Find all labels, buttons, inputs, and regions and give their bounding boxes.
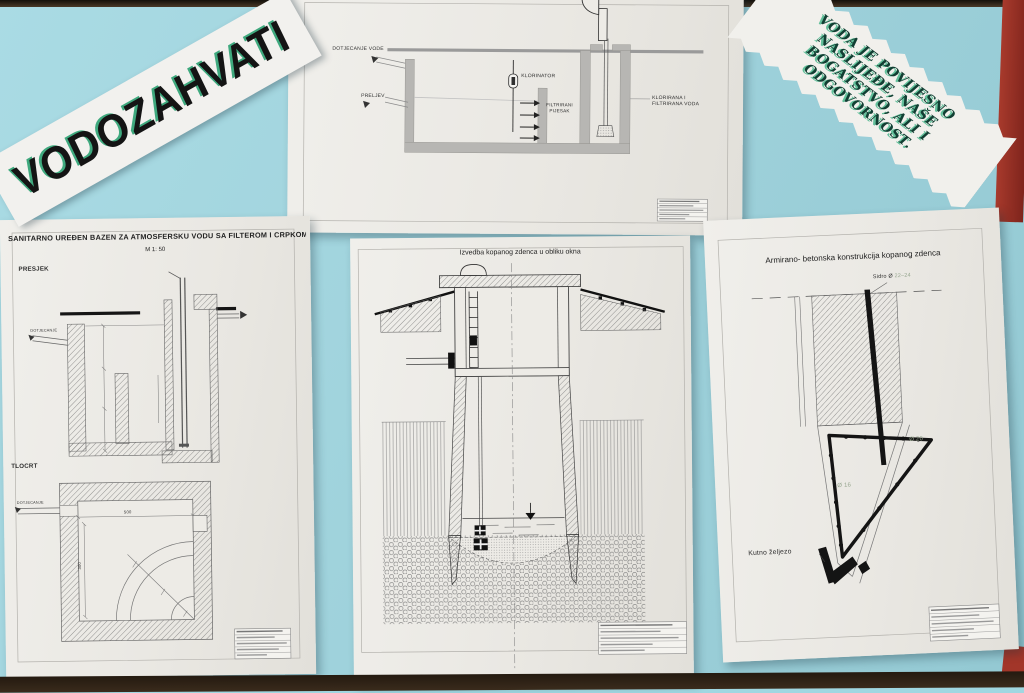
title-block <box>235 628 291 659</box>
dim-width-label: 500 <box>124 509 132 514</box>
water-level-mark <box>525 513 535 520</box>
banner-text: VODOZAHVATI <box>6 10 297 209</box>
quote-text: VODA JE POVIJESNO NASLIJEĐE, NAŠE BOGATS… <box>787 13 958 164</box>
ground-line <box>387 48 703 53</box>
photo-of-bulletin-board: { "colors": { "board": "#a0d7e1", "frame… <box>0 0 1024 687</box>
well-top-chamber <box>374 263 665 378</box>
inflow-label: DOTJECANJE VODE <box>332 46 386 53</box>
drawing-sheet-basin: SANITARNO UREĐEN BAZEN ZA ATMOSFERSKU VO… <box>0 216 316 678</box>
tlocrt-plan <box>15 481 213 642</box>
anchor-leader-line <box>870 283 887 294</box>
drawing-sheet-dug-well: Izvedba kopanog zdenca u obliku okna <box>350 236 694 684</box>
vodozahvati-banner: VODOZAHVATI <box>0 0 322 227</box>
chlorinator-label: KLORINATOR <box>521 73 555 79</box>
flow-arrows <box>520 100 540 141</box>
rebar-diameter-right-label: Ø 20 <box>909 436 923 444</box>
inflow-pipe <box>371 56 405 68</box>
reinforcement-drawing <box>703 208 1019 663</box>
plan-label: TLOCRT <box>11 463 37 471</box>
sheet-border <box>303 3 729 224</box>
drawing-sheet-reinforcement: Armirano- betonska konstrukcija kopanog … <box>703 208 1019 663</box>
water-level-line <box>414 97 538 101</box>
anchor-label-text: Sidro Ø <box>873 273 893 280</box>
outflow-label: KLORIRANA I FILTRIRANA VODA <box>652 95 710 108</box>
plan-inflow-label: DOTJECANJE <box>17 501 44 506</box>
vent-cowl <box>582 0 607 41</box>
presjek-section <box>28 271 250 465</box>
outlet-pipe-and-sprinkler <box>597 39 615 137</box>
section-label: PRESJEK <box>18 266 48 274</box>
angle-iron <box>818 545 871 585</box>
title-block <box>657 199 707 221</box>
section-inflow-label: DOTJECANJE <box>30 328 57 333</box>
drawing-sheet-chlorination-tank: DOTJECANJE VODE PRELJEV KLORINATOR FILTR… <box>287 0 744 236</box>
chlorination-tank-drawing <box>287 0 744 236</box>
rebar-diameter-left-label: Ø 16 <box>837 483 851 491</box>
chlorinator-tube <box>508 60 518 132</box>
red-ribbon-top-right <box>995 0 1024 222</box>
dim-depth-label: 300 <box>77 562 82 570</box>
title-block <box>929 604 1000 641</box>
dug-well-drawing <box>350 236 694 684</box>
title-block <box>598 622 686 655</box>
overflow-label: PRELJEV <box>361 93 385 99</box>
basin-drawing <box>0 216 316 678</box>
filter-sand-label: FILTRIRANI PIJESAK <box>538 102 581 114</box>
quote-strip: VODA JE POVIJESNO NASLIJEĐE, NAŠE BOGATS… <box>727 0 1017 213</box>
tank-walls <box>405 43 631 154</box>
anchor-size: 22–24 <box>894 273 911 280</box>
